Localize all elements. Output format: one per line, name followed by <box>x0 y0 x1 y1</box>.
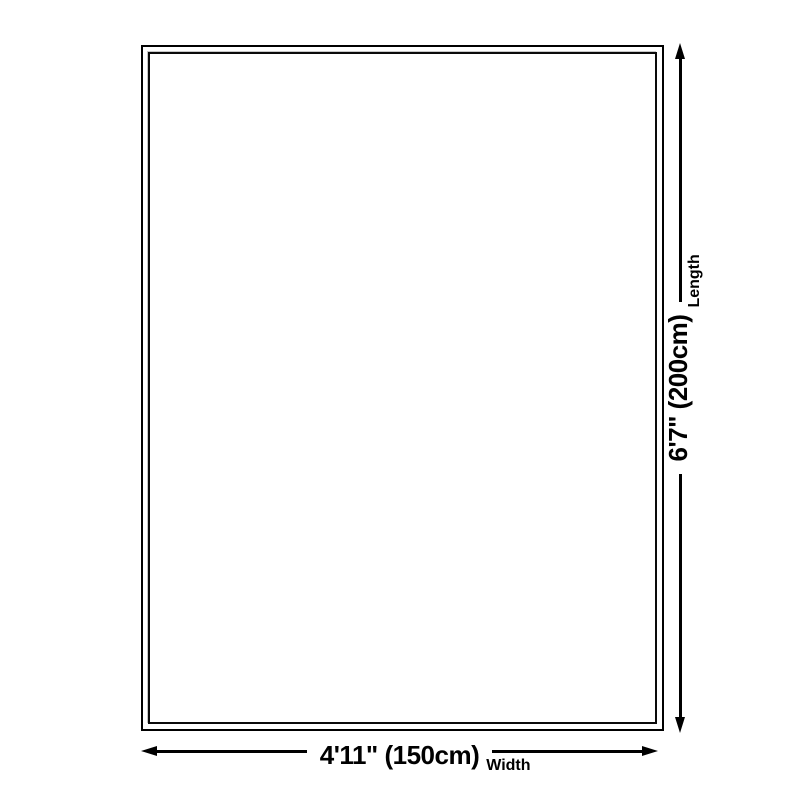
width-dimension: 4'11" (150cm) Width <box>141 729 658 773</box>
arrow-left-icon <box>141 746 157 756</box>
arrow-right-icon <box>642 746 658 756</box>
length-dimension-line-top <box>679 59 682 302</box>
length-axis-label: Length <box>687 254 703 307</box>
width-dimension-right-segment: Width <box>492 729 658 773</box>
width-axis-label: Width <box>486 758 530 774</box>
arrow-down-icon <box>675 717 685 733</box>
width-dimension-line-right <box>492 750 642 753</box>
rug-inner-border <box>148 52 657 724</box>
rug-outline <box>141 45 664 731</box>
width-value: 4'11" (150cm) <box>307 741 492 770</box>
width-dimension-line-left <box>157 750 307 753</box>
length-dimension: 6'7" (200cm) Length <box>658 43 702 733</box>
length-dimension-bottom-segment <box>658 474 702 733</box>
arrow-up-icon <box>675 43 685 59</box>
length-dimension-top-segment: Length <box>658 43 702 302</box>
dimension-diagram: 4'11" (150cm) Width 6'7" (200cm) Length <box>0 0 800 800</box>
width-dimension-left-segment <box>141 729 307 773</box>
length-dimension-line-bottom <box>679 474 682 717</box>
length-value: 6'7" (200cm) <box>664 302 693 475</box>
